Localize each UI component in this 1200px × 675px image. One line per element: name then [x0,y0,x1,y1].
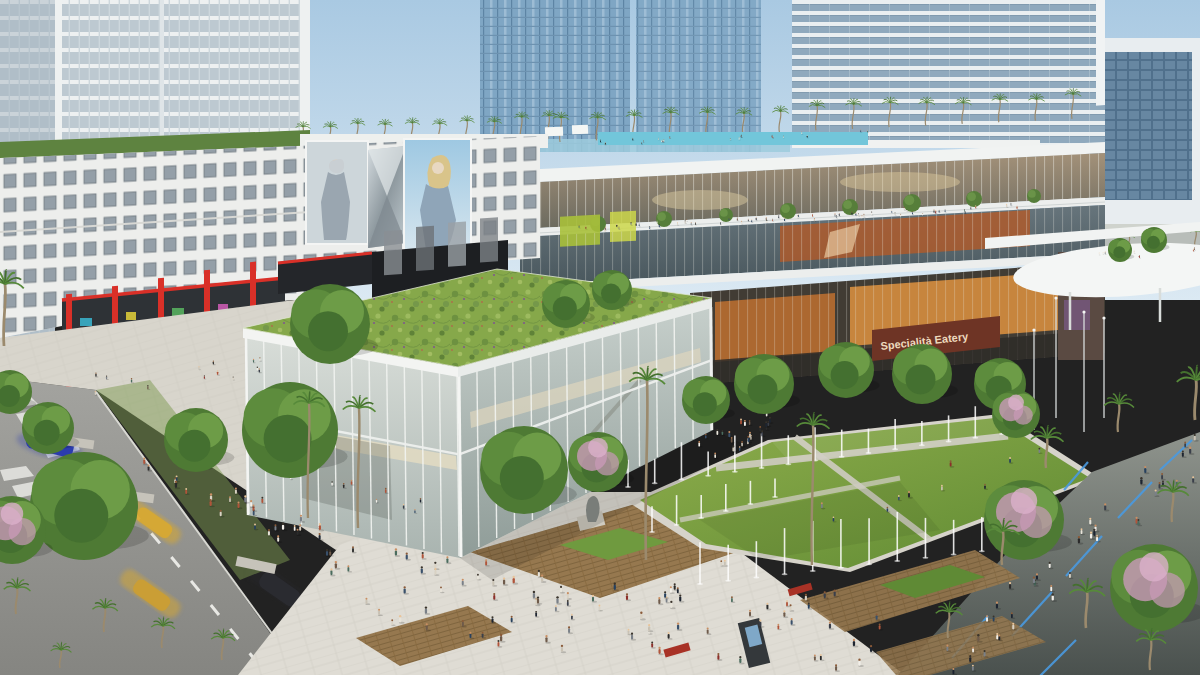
plaza-rendering: Aerial rendering of a mixed-use urban pl… [0,0,1200,675]
distant-office-glazing [1098,52,1192,200]
rooftop-pool [598,132,868,145]
billboard-left-fashion-model [306,141,368,244]
interior-light [840,172,960,192]
pool-cabana [572,125,588,135]
corner-retail-display [1064,300,1090,330]
red-bench [788,583,813,596]
rendering-stage: Aerial rendering of a mixed-use urban pl… [0,0,1200,675]
corner-column [459,375,461,557]
interior-light [652,190,748,210]
